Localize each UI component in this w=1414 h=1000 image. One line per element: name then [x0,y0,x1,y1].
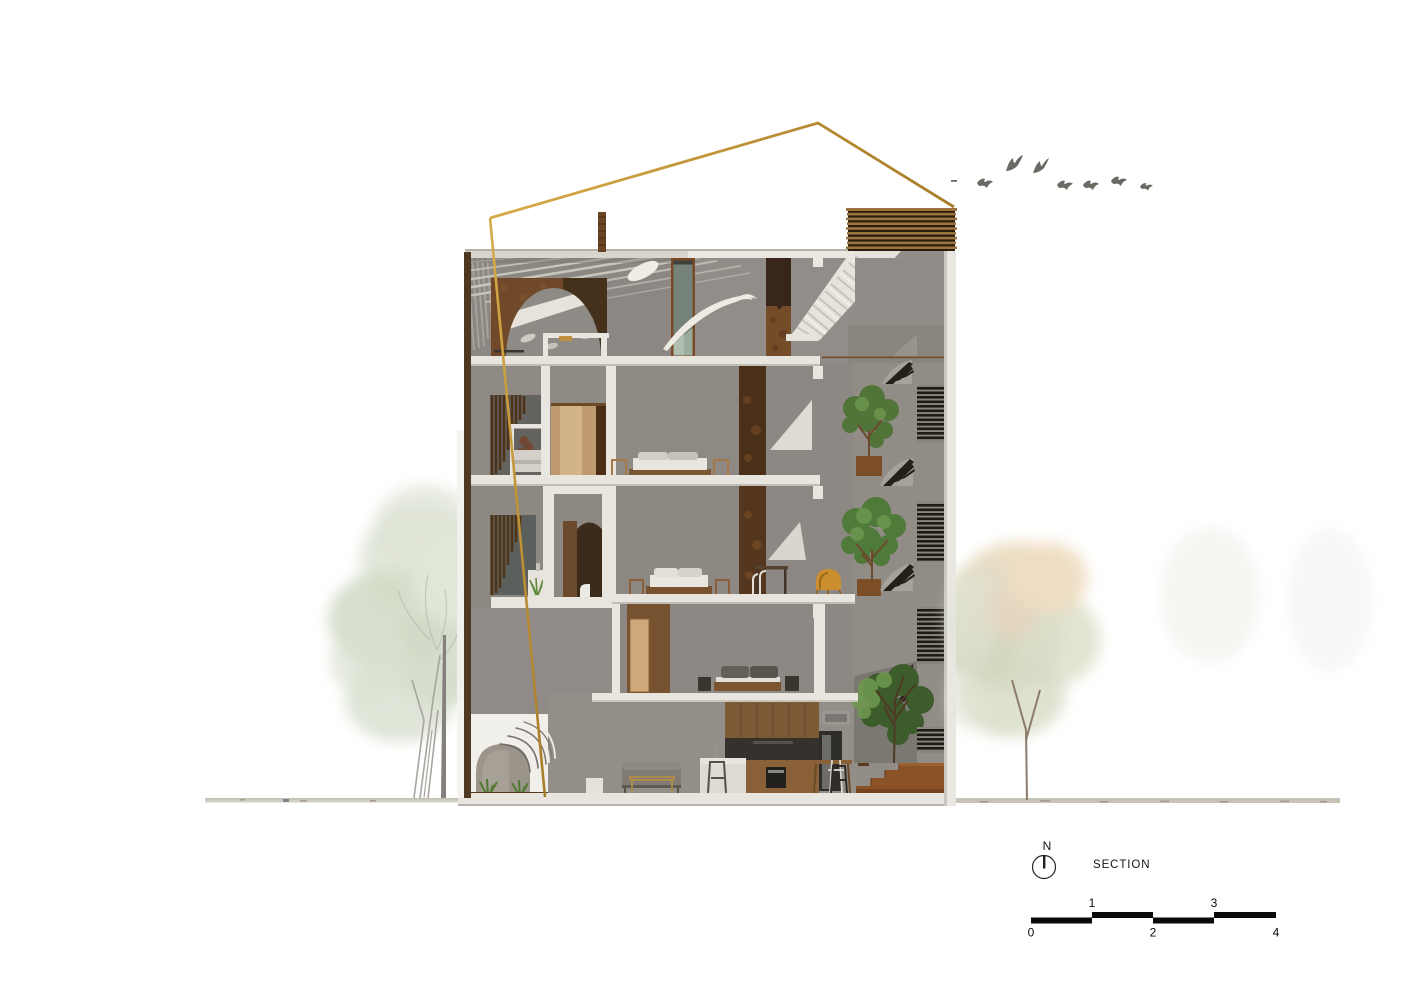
svg-text:0: 0 [1028,926,1035,940]
svg-text:2: 2 [1150,926,1157,940]
svg-text:N: N [1043,839,1052,853]
svg-text:3: 3 [1211,896,1218,910]
svg-text:SECTION: SECTION [1093,859,1150,871]
svg-text:4: 4 [1273,926,1280,940]
svg-text:1: 1 [1089,896,1096,910]
